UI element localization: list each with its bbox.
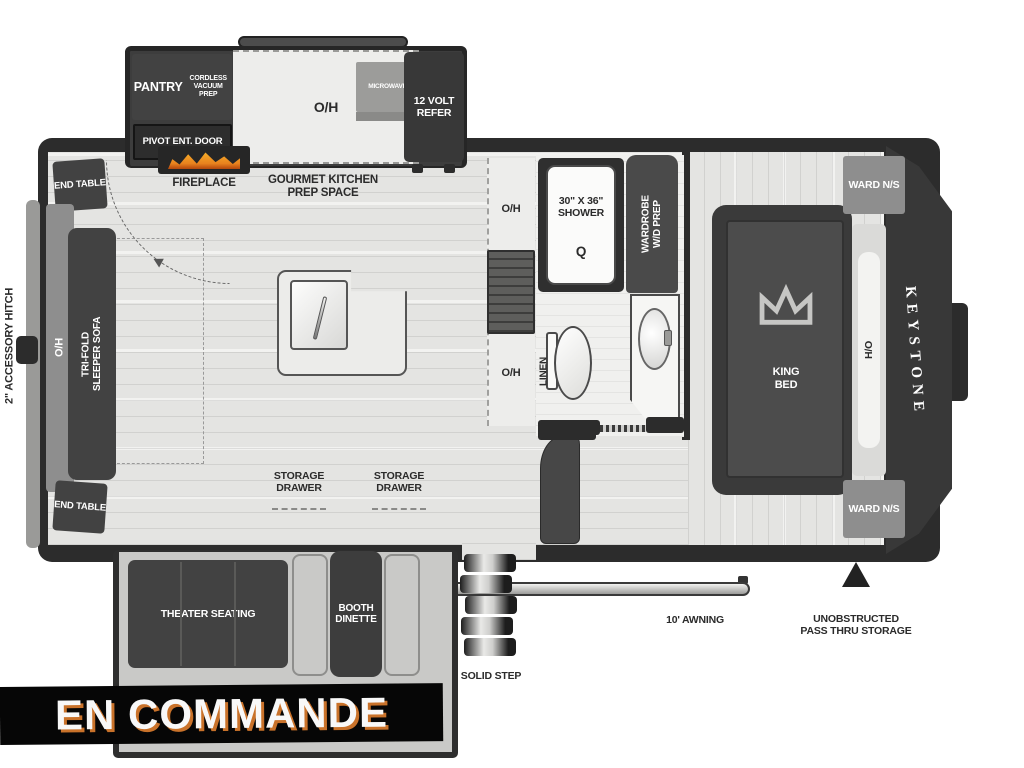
rv-floorplan-image: 2" ACCESSORY HITCH END TABLE O/H TRI-FOL… (0, 0, 1024, 768)
step-tread-2 (460, 575, 512, 593)
shower-pan (546, 165, 616, 285)
bath-door-seal-track (600, 425, 648, 432)
twelve-volt-refer: 12 VOLT REFER (404, 52, 464, 162)
king-bed-mattress (726, 220, 844, 478)
linen-label: LINEN (536, 328, 552, 414)
pantry-label: PANTRY (132, 80, 184, 94)
pass-thru-triangle-icon (842, 562, 870, 587)
dinette-bench-right (384, 554, 420, 676)
step-tread-3 (465, 596, 517, 614)
end-table-bottom: END TABLE (52, 480, 107, 534)
dinette-bench-left (292, 554, 328, 676)
pass-thru-label: UNOBSTRUCTED PASS THRU STORAGE (800, 596, 912, 654)
vanity-faucet (664, 330, 672, 346)
step-tread-4 (461, 617, 513, 635)
wardrobe-wd-prep: WARDROBE W/D PREP (626, 155, 678, 293)
storage-drawer-right-label: STORAGE DRAWER (366, 466, 432, 498)
front-cap-trim (26, 200, 40, 548)
fireplace-label: FIREPLACE (148, 176, 260, 192)
counter-oh-top: O/H (489, 198, 533, 220)
fireplace-unit (158, 146, 250, 174)
status-banner-text: EN COMMANDE (55, 689, 388, 740)
ward-ns-bottom: WARD N/S (843, 480, 905, 538)
bath-door-panel (540, 436, 580, 544)
gourmet-kitchen-label: GOURMET KITCHEN PREP SPACE (256, 168, 390, 206)
king-bed-label: KING BED (762, 362, 810, 396)
bath-wall-right-segment (646, 417, 684, 433)
status-banner: EN COMMANDE (0, 683, 443, 745)
theater-seat-divider-1 (180, 562, 182, 666)
flame-icon (168, 151, 240, 169)
toilet-bowl (554, 326, 592, 400)
drawer-dash-left (272, 508, 326, 510)
shower-head-symbol: Q (548, 242, 614, 262)
accessory-hitch-label: 2" ACCESSORY HITCH (0, 228, 20, 464)
theater-seat-divider-2 (234, 562, 236, 666)
refer-foot-right (444, 164, 455, 173)
bath-door-header (538, 430, 596, 440)
ward-ns-top: WARD N/S (843, 156, 905, 214)
headboard-ho-label: H/O (860, 322, 878, 378)
theater-seating: THEATER SEATING (128, 560, 288, 668)
counter-oh-bottom: O/H (489, 362, 533, 384)
refer-foot-left (412, 164, 423, 173)
cordless-vacuum-prep-label: CORDLESS VACUUM PREP (184, 75, 232, 99)
step-tread-1 (464, 554, 516, 572)
booth-dinette-table: BOOTH DINETTE (330, 551, 382, 677)
pantry-cabinet: PANTRY CORDLESS VACUUM PREP (132, 54, 232, 120)
cooktop-range (487, 250, 535, 334)
crown-icon (755, 283, 817, 329)
awning-label: 10' AWNING (652, 612, 738, 628)
storage-drawer-left-label: STORAGE DRAWER (266, 466, 332, 498)
shower-size-label: 30" X 36" SHOWER (548, 190, 614, 224)
step-tread-5 (464, 638, 516, 656)
solid-step-stairs (460, 554, 520, 662)
solid-step-label: SOLID STEP (454, 668, 528, 684)
tri-fold-sleeper-sofa: TRI-FOLD SLEEPER SOFA (68, 228, 116, 480)
drawer-dash-right (372, 508, 426, 510)
